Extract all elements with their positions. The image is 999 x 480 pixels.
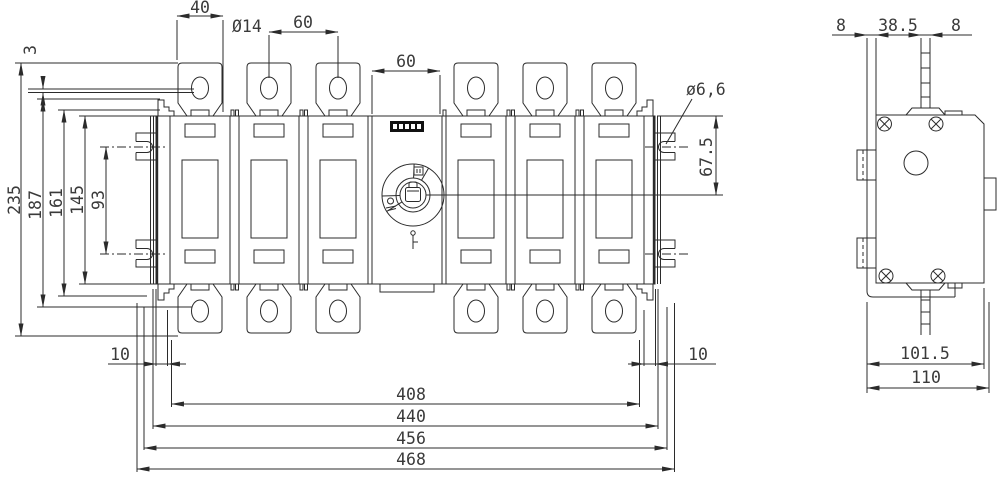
dim-label-440: 440: [396, 407, 426, 426]
dim-label-456: 456: [396, 429, 426, 448]
screw: [931, 269, 945, 283]
dim-label-110: 110: [911, 368, 941, 387]
dim-408: 408: [172, 385, 640, 404]
side-bracket: [867, 38, 955, 297]
left-bracket: [100, 100, 174, 300]
side-view: [857, 38, 996, 335]
dim-440: 440: [153, 407, 658, 426]
screw: [929, 117, 943, 131]
dim-label-187: 187: [26, 190, 45, 220]
front-view: [15, 63, 723, 333]
terminal: [523, 284, 567, 333]
dimension-drawing-svg: 40 Ø14 60 60 3 235: [0, 0, 999, 480]
right-bracket: [637, 100, 688, 300]
shaft-hole: [904, 151, 928, 175]
dim-side-top: 8 38.5 8: [832, 16, 972, 35]
module-bottom-plate: [380, 284, 434, 292]
dim-label-235: 235: [5, 185, 24, 215]
dim-label-93: 93: [89, 190, 108, 210]
pole-bottom-slots: [185, 250, 629, 263]
dim-label-10-right: 10: [688, 345, 708, 364]
screw: [878, 117, 892, 131]
dim-468: 468: [137, 450, 675, 469]
dim-label-8-right: 8: [951, 16, 961, 35]
dim-label-101-5: 101.5: [900, 344, 950, 363]
terminal: [454, 63, 498, 116]
dim-label-161: 161: [47, 188, 66, 218]
dim-93: 93: [89, 147, 108, 254]
terminal: [592, 284, 636, 333]
dim-67-5: 67.5: [657, 116, 723, 195]
dim-10-right: 10: [628, 345, 716, 364]
dim-label-60-pitch: 60: [293, 13, 313, 32]
terminal: [454, 284, 498, 333]
dim-3: 3: [21, 45, 43, 103]
busbar-lines: [15, 63, 194, 93]
dim-label-67-5: 67.5: [697, 137, 716, 177]
dim-hole-dia: Ø14: [232, 17, 269, 78]
dim-40: 40: [177, 0, 223, 112]
bottom-blade-terminal: [906, 283, 962, 335]
dim-label-38-5: 38.5: [878, 16, 918, 35]
dim-label-3: 3: [21, 45, 40, 55]
dim-label-468: 468: [396, 450, 426, 469]
technical-drawing: 40 Ø14 60 60 3 235: [0, 0, 999, 480]
pole-windows: [182, 160, 632, 238]
dim-60-pitch: 60: [269, 13, 338, 78]
dim-label-8-left: 8: [836, 16, 846, 35]
dim-60-module: 60: [372, 52, 440, 114]
dim-label-60-module: 60: [396, 52, 416, 71]
terminal: [178, 284, 222, 333]
switch-knob: [382, 164, 444, 249]
dim-label-slot-dia: ø6,6: [686, 80, 726, 99]
terminal: [592, 63, 636, 116]
top-blade-terminal: [906, 38, 962, 115]
dimensions: 40 Ø14 60 60 3 235: [5, 0, 989, 472]
brand-label: [390, 121, 424, 132]
dim-10-left: 10: [108, 345, 186, 364]
bottom-terminals: [178, 284, 636, 333]
dim-label-408: 408: [396, 385, 426, 404]
dim-label-10-left: 10: [110, 345, 130, 364]
side-body: [876, 115, 984, 283]
dim-label-40: 40: [190, 0, 210, 17]
screw: [879, 269, 893, 283]
terminal: [523, 63, 567, 116]
dim-label-145: 145: [68, 185, 87, 215]
handle-cover: [984, 178, 996, 210]
terminal: [247, 284, 291, 333]
padlock-icon: [406, 182, 421, 202]
terminal: [316, 284, 360, 333]
dim-456: 456: [144, 429, 667, 448]
dim-label-hole-dia: Ø14: [232, 17, 262, 36]
key-icon: [411, 231, 418, 249]
